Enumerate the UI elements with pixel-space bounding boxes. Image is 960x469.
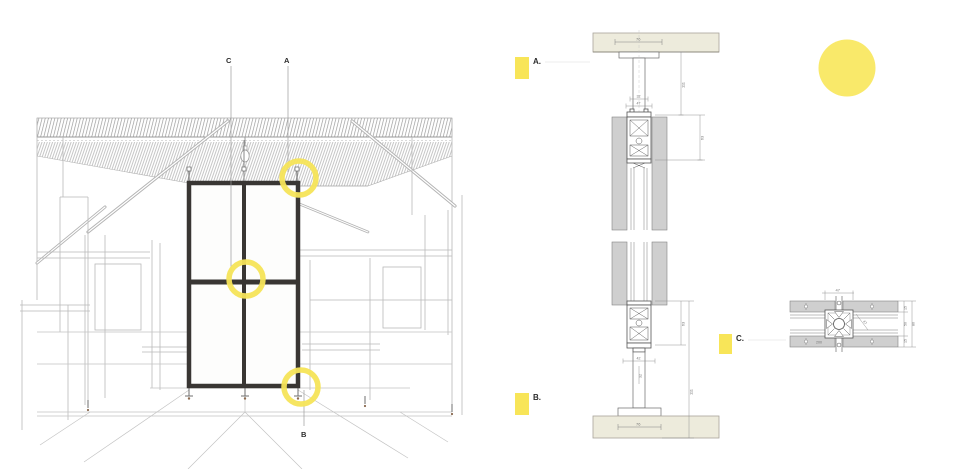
dim-profile-width: 47 (836, 288, 841, 293)
marker-a-label: A. (533, 57, 541, 66)
dim-head-gap: 32 (637, 95, 641, 99)
dim-side-top: 15 (904, 306, 908, 310)
perspective-view: C A B (20, 56, 462, 469)
dim-stem-height: 32 (639, 374, 643, 378)
head-profile (627, 109, 651, 168)
ceiling-slab: 76 (593, 33, 719, 52)
dim-side-mid: 50 (904, 322, 908, 326)
marker-b-swatch (515, 393, 529, 415)
dim-side-bot: 15 (904, 339, 908, 343)
highlight-dot (819, 40, 876, 97)
dim-panel-length: 200 (816, 341, 822, 345)
dim-profile-diagonal: 47 (862, 320, 868, 326)
dim-overall: 80 (912, 322, 916, 326)
plan-section-detail: C. (719, 288, 916, 355)
marker-b-label: B. (533, 393, 541, 402)
drawing-canvas: C A B A. B. 76 (0, 0, 960, 469)
dim-ceiling-width: 76 (636, 37, 641, 42)
callout-b: B (301, 430, 307, 439)
callout-a: A (284, 56, 290, 65)
vertical-section-detail: A. B. 76 (515, 30, 719, 438)
dim-sill-height: 111 (689, 388, 694, 395)
dim-stem-width: 42 (637, 357, 641, 361)
dim-head-width: 47 (637, 102, 641, 106)
sill-profile (627, 301, 651, 352)
marker-c-label: C. (736, 334, 744, 343)
callout-c: C (226, 56, 232, 65)
floor-anchors (87, 386, 453, 415)
dim-head-profile: 63 (700, 135, 705, 140)
marker-a-swatch (515, 57, 529, 79)
dim-sill-profile: 63 (681, 321, 686, 326)
dim-base-width: 76 (636, 422, 641, 427)
dim-drop-height: 111 (681, 81, 686, 88)
floor-slab: 76 (593, 416, 719, 438)
detail-sheet: C A B A. B. 76 (0, 0, 960, 469)
marker-c-swatch (719, 334, 732, 354)
floor-pedestal (618, 352, 661, 416)
